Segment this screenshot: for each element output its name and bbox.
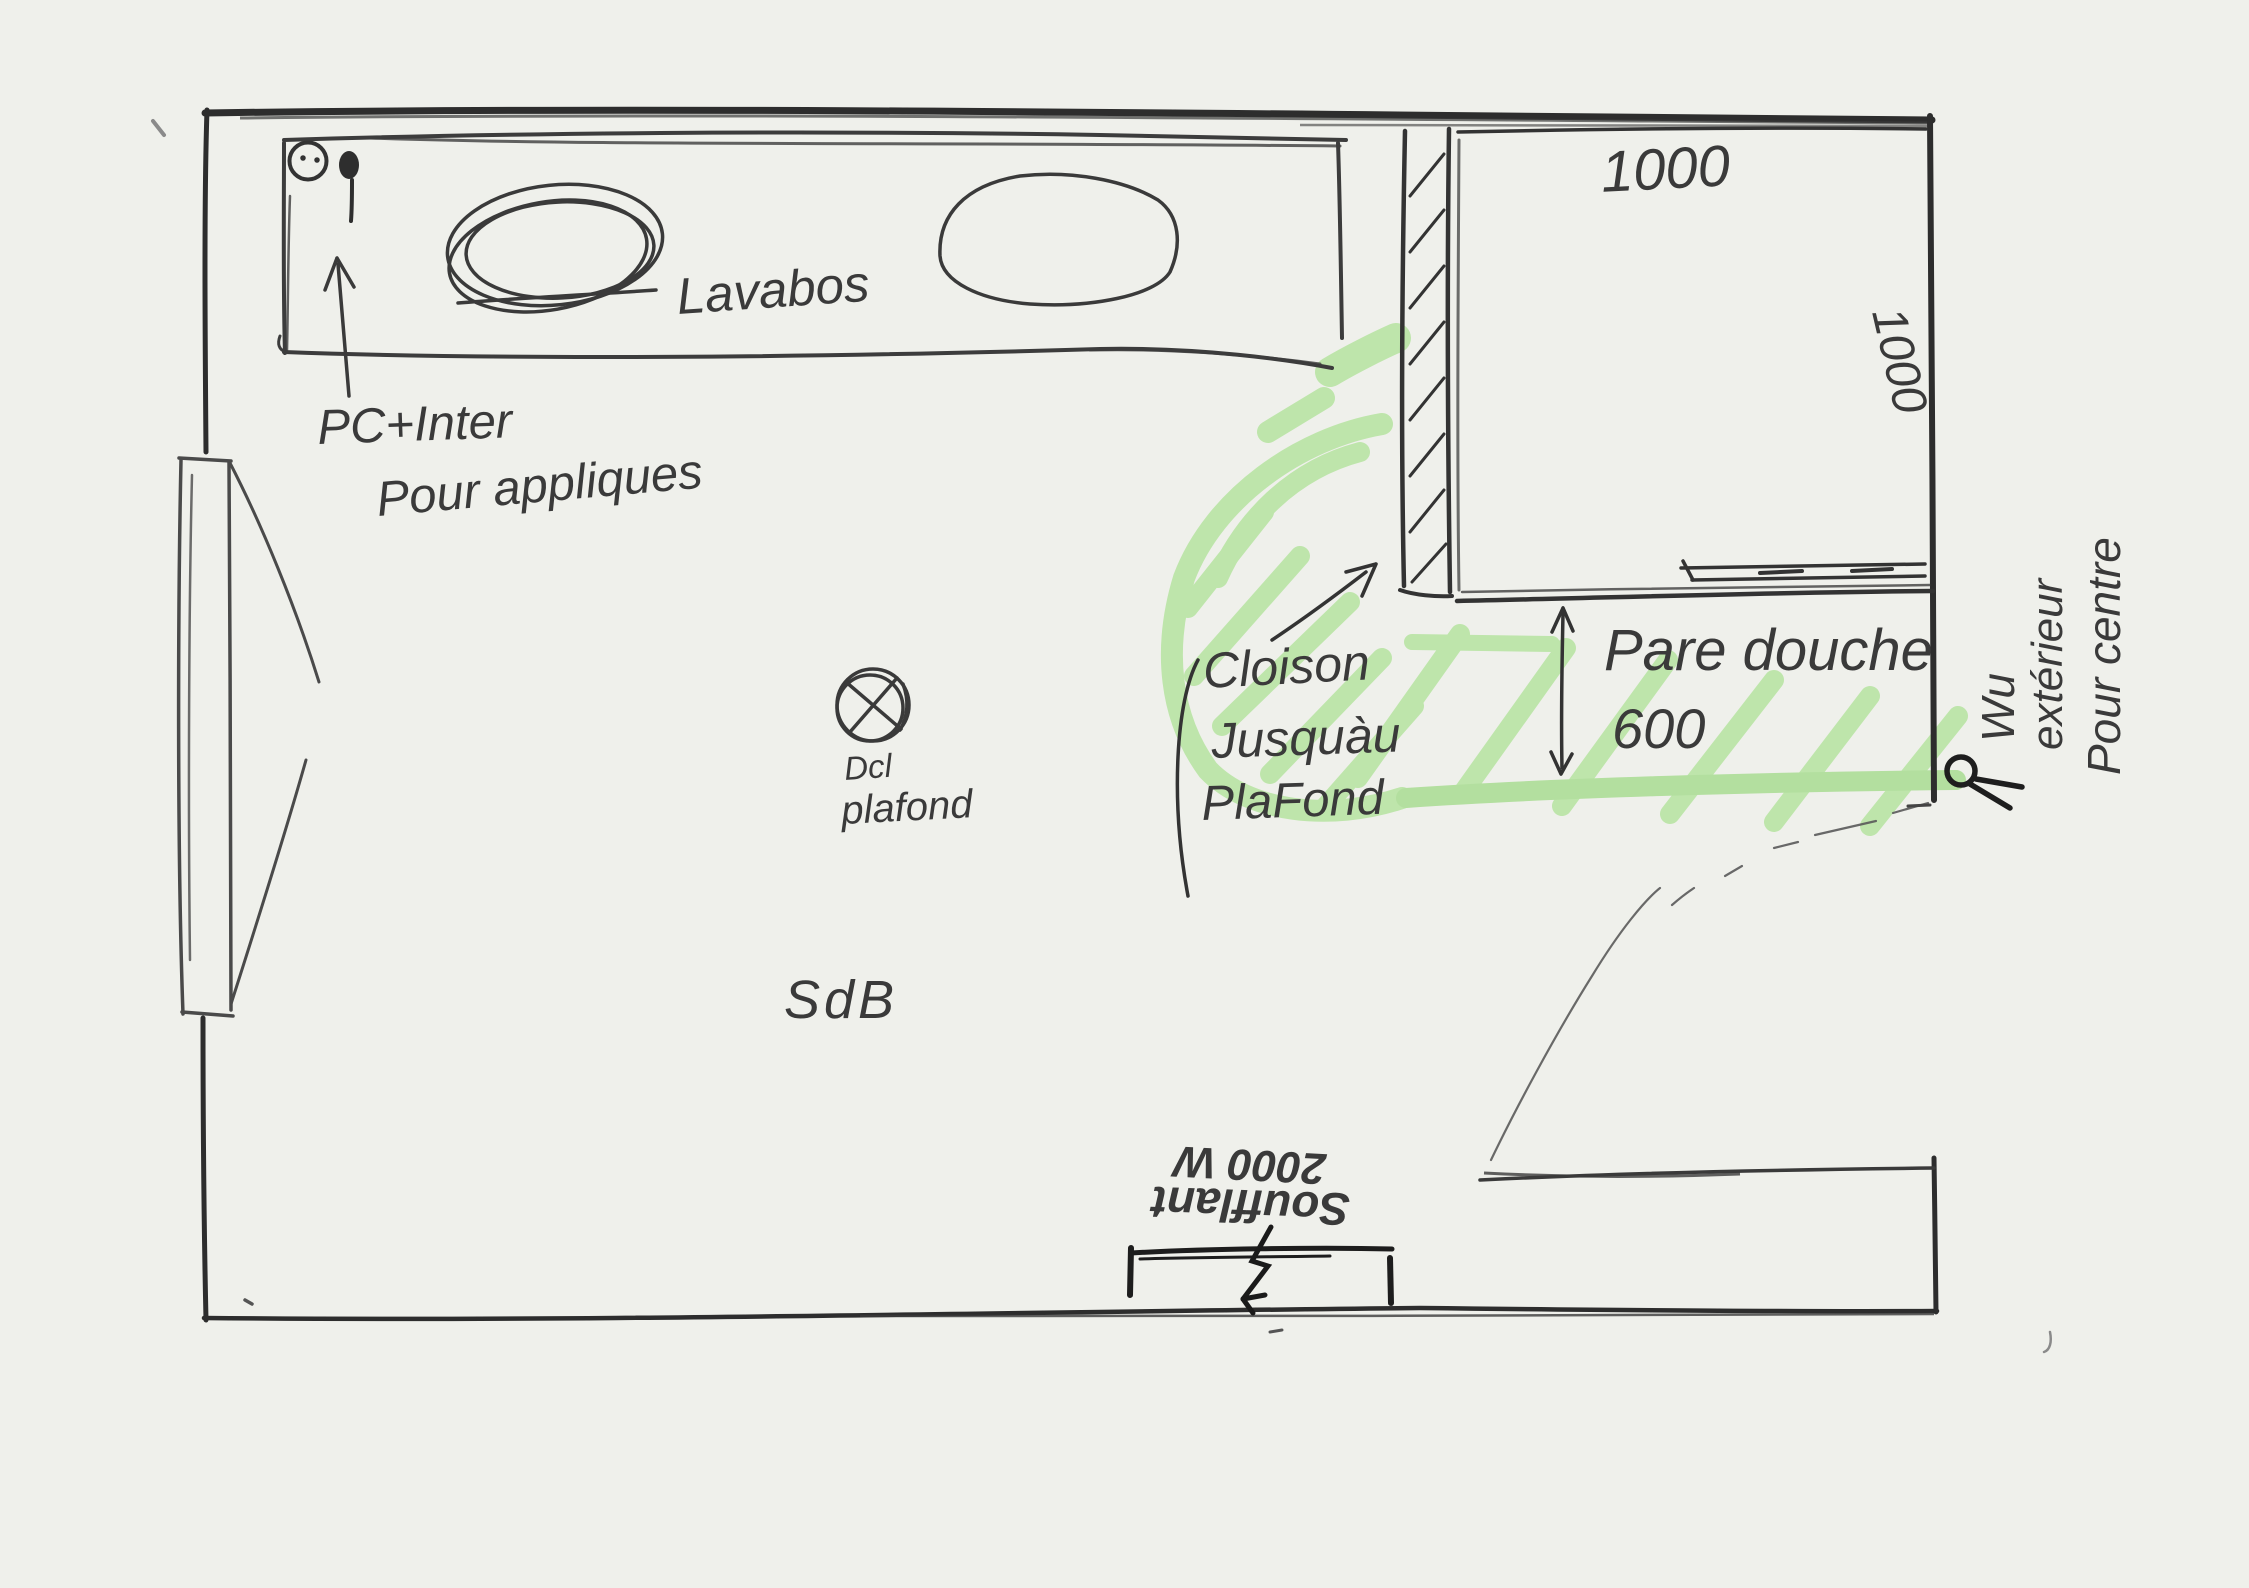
svg-text:Pour centre: Pour centre [2078,537,2130,775]
svg-text:plafond: plafond [839,782,975,833]
svg-text:PC+Inter: PC+Inter [316,394,514,455]
svg-text:extérieur: extérieur [2023,576,2072,750]
svg-text:600: 600 [1612,697,1705,760]
svg-text:SdB: SdB [784,970,898,1030]
svg-text:2000 W: 2000 W [1170,1136,1328,1193]
svg-text:1000: 1000 [1599,133,1731,205]
svg-text:Pare douche: Pare douche [1604,618,1933,683]
svg-text:Cloison: Cloison [1202,634,1371,699]
svg-text:Wu: Wu [1972,673,2024,742]
svg-text:Jusquàu: Jusquàu [1209,706,1401,769]
svg-text:PlaFond: PlaFond [1200,771,1386,831]
svg-text:Dcl: Dcl [843,747,895,787]
